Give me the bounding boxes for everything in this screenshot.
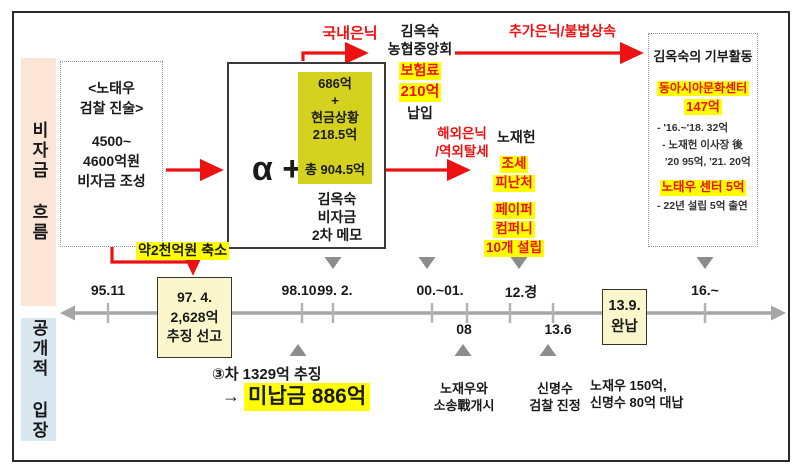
- donation-box: 김옥숙의 기부활동 동아시아문화센터 147억 - '16.~'18. 32억 …: [648, 33, 758, 247]
- donation-note: '20 95억, '21. 20억: [657, 154, 757, 171]
- overseas-hiding-line: 해외은닉: [428, 125, 496, 143]
- collection-note: ③차 1329억 추징: [212, 363, 322, 384]
- donation-center1: 동아시아문화센터: [657, 81, 749, 96]
- memo-box: α + 686억 + 현금상황 218.5억 총 904.5억 김옥숙 비자금 …: [227, 62, 386, 249]
- amount-line: +: [331, 93, 339, 110]
- person-roh-jaehun: 노재헌: [497, 127, 536, 147]
- right-arrow-glyph: →: [222, 386, 240, 407]
- testimony-line: <노태우: [61, 78, 162, 98]
- insurance-highlight: 210억: [399, 83, 442, 102]
- lawsuit-note: 노재우와 소송戰개시: [428, 381, 500, 415]
- label-additional-hiding: 추가은닉/불법상속: [500, 21, 625, 41]
- testimony-box: <노태우 검찰 진술> 4500~ 4600억원 비자금 조성: [60, 61, 163, 247]
- testimony-line: 검찰 진술>: [61, 98, 162, 118]
- insurance-highlight: 보험료: [399, 62, 442, 80]
- band-fund-flow-label: 비자금 흐름: [26, 121, 51, 243]
- testimony-line: 비자금 조성: [61, 171, 162, 191]
- box-1997-line: 추징 선고: [167, 327, 222, 347]
- lawsuit-line: 노재우와: [428, 381, 500, 398]
- paper-company-line: 10개 설립: [484, 240, 544, 257]
- insurance-tail: 납입: [381, 104, 459, 122]
- amount-line: 218.5억: [313, 127, 358, 144]
- timeline-label-99-2: 99. 2.: [306, 282, 364, 298]
- testimony-line: 4500~: [61, 131, 162, 151]
- box-2013-line: 13.9.: [608, 296, 640, 317]
- reduction-highlight: 약2천억원 축소: [136, 242, 229, 260]
- payment-note: 노재우 150억, 신명수 80억 대납: [590, 378, 683, 412]
- timeline-label-12: 12.경: [491, 282, 551, 302]
- tax-haven-line: 피난처: [493, 175, 534, 192]
- box-1997-line: 97. 4.: [177, 288, 212, 308]
- unpaid-highlight: 미납금 886억: [244, 383, 370, 411]
- memo-caption-line: 김옥숙: [287, 190, 387, 208]
- band-public-stance: 공개적 입장: [21, 318, 56, 441]
- testimony-line: 4600억원: [61, 151, 162, 171]
- petition-line: 신명수: [519, 381, 591, 398]
- paper-company-line: 컴퍼니: [493, 221, 534, 238]
- band-public-stance-label: 공개적 입장: [26, 319, 51, 441]
- insurance-block: 김옥숙 농협중앙회 보험료 210억 납입: [381, 22, 459, 122]
- donation-center1-amount: 147억: [684, 99, 722, 115]
- paper-company-block: 페이퍼 컴퍼니 10개 설립: [478, 201, 550, 257]
- insurance-who-line: 농협중앙회: [381, 40, 459, 58]
- timeline-label-08: 08: [434, 321, 494, 337]
- unpaid-amount: 미납금 886억: [244, 383, 370, 411]
- donation-note: - 22년 설립 5억 출연: [657, 198, 757, 215]
- petition-line: 검찰 진정: [519, 398, 591, 415]
- box-1997-line: 2,628억: [171, 308, 219, 328]
- petition-note: 신명수 검찰 진정: [519, 381, 591, 415]
- tax-haven-line: 조세: [500, 156, 529, 173]
- payment-line: 노재우 150억,: [590, 378, 683, 395]
- timeline-label-16: 16.~: [675, 282, 735, 298]
- timeline-label-13-6: 13.6: [528, 321, 588, 337]
- box-2013-full-payment: 13.9. 완납: [602, 289, 647, 345]
- donation-title: 김옥숙의 기부활동: [649, 46, 757, 65]
- lawsuit-line: 소송戰개시: [428, 398, 500, 415]
- timeline-label-95-11: 95.11: [78, 282, 138, 298]
- insurance-who-line: 김옥숙: [381, 22, 459, 40]
- payment-line: 신명수 80억 대납: [590, 395, 683, 412]
- box-2013-line: 완납: [611, 317, 638, 338]
- memo-caption-line: 비자금: [287, 208, 387, 226]
- label-reduction: 약2천억원 축소: [136, 242, 229, 260]
- box-1997-surcharge: 97. 4. 2,628억 추징 선고: [157, 277, 232, 358]
- label-domestic-hiding: 국내은닉: [314, 22, 386, 43]
- donation-center2: 노태우 센터 5억: [660, 180, 747, 196]
- tax-haven-block: 조세 피난처: [483, 155, 545, 192]
- memo-caption: 김옥숙 비자금 2차 메모: [287, 190, 387, 245]
- band-fund-flow: 비자금 흐름: [21, 58, 56, 306]
- memo-amount-box: 686억 + 현금상황 218.5억 총 904.5억: [298, 72, 372, 184]
- donation-note: - 노재헌 이사장 後: [657, 137, 757, 154]
- amount-total: 총 904.5억: [305, 162, 365, 184]
- paper-company-line: 페이퍼: [493, 202, 534, 219]
- amount-line: 686억: [318, 76, 352, 93]
- timeline-label-00-01: 00.~01.: [403, 282, 477, 298]
- slush-fund-timeline-diagram: 비자금 흐름 공개적 입장: [0, 0, 800, 469]
- donation-note: - '16.~'18. 32억: [657, 120, 757, 137]
- memo-caption-line: 2차 메모: [287, 226, 387, 244]
- amount-line: 현금상황: [311, 110, 359, 127]
